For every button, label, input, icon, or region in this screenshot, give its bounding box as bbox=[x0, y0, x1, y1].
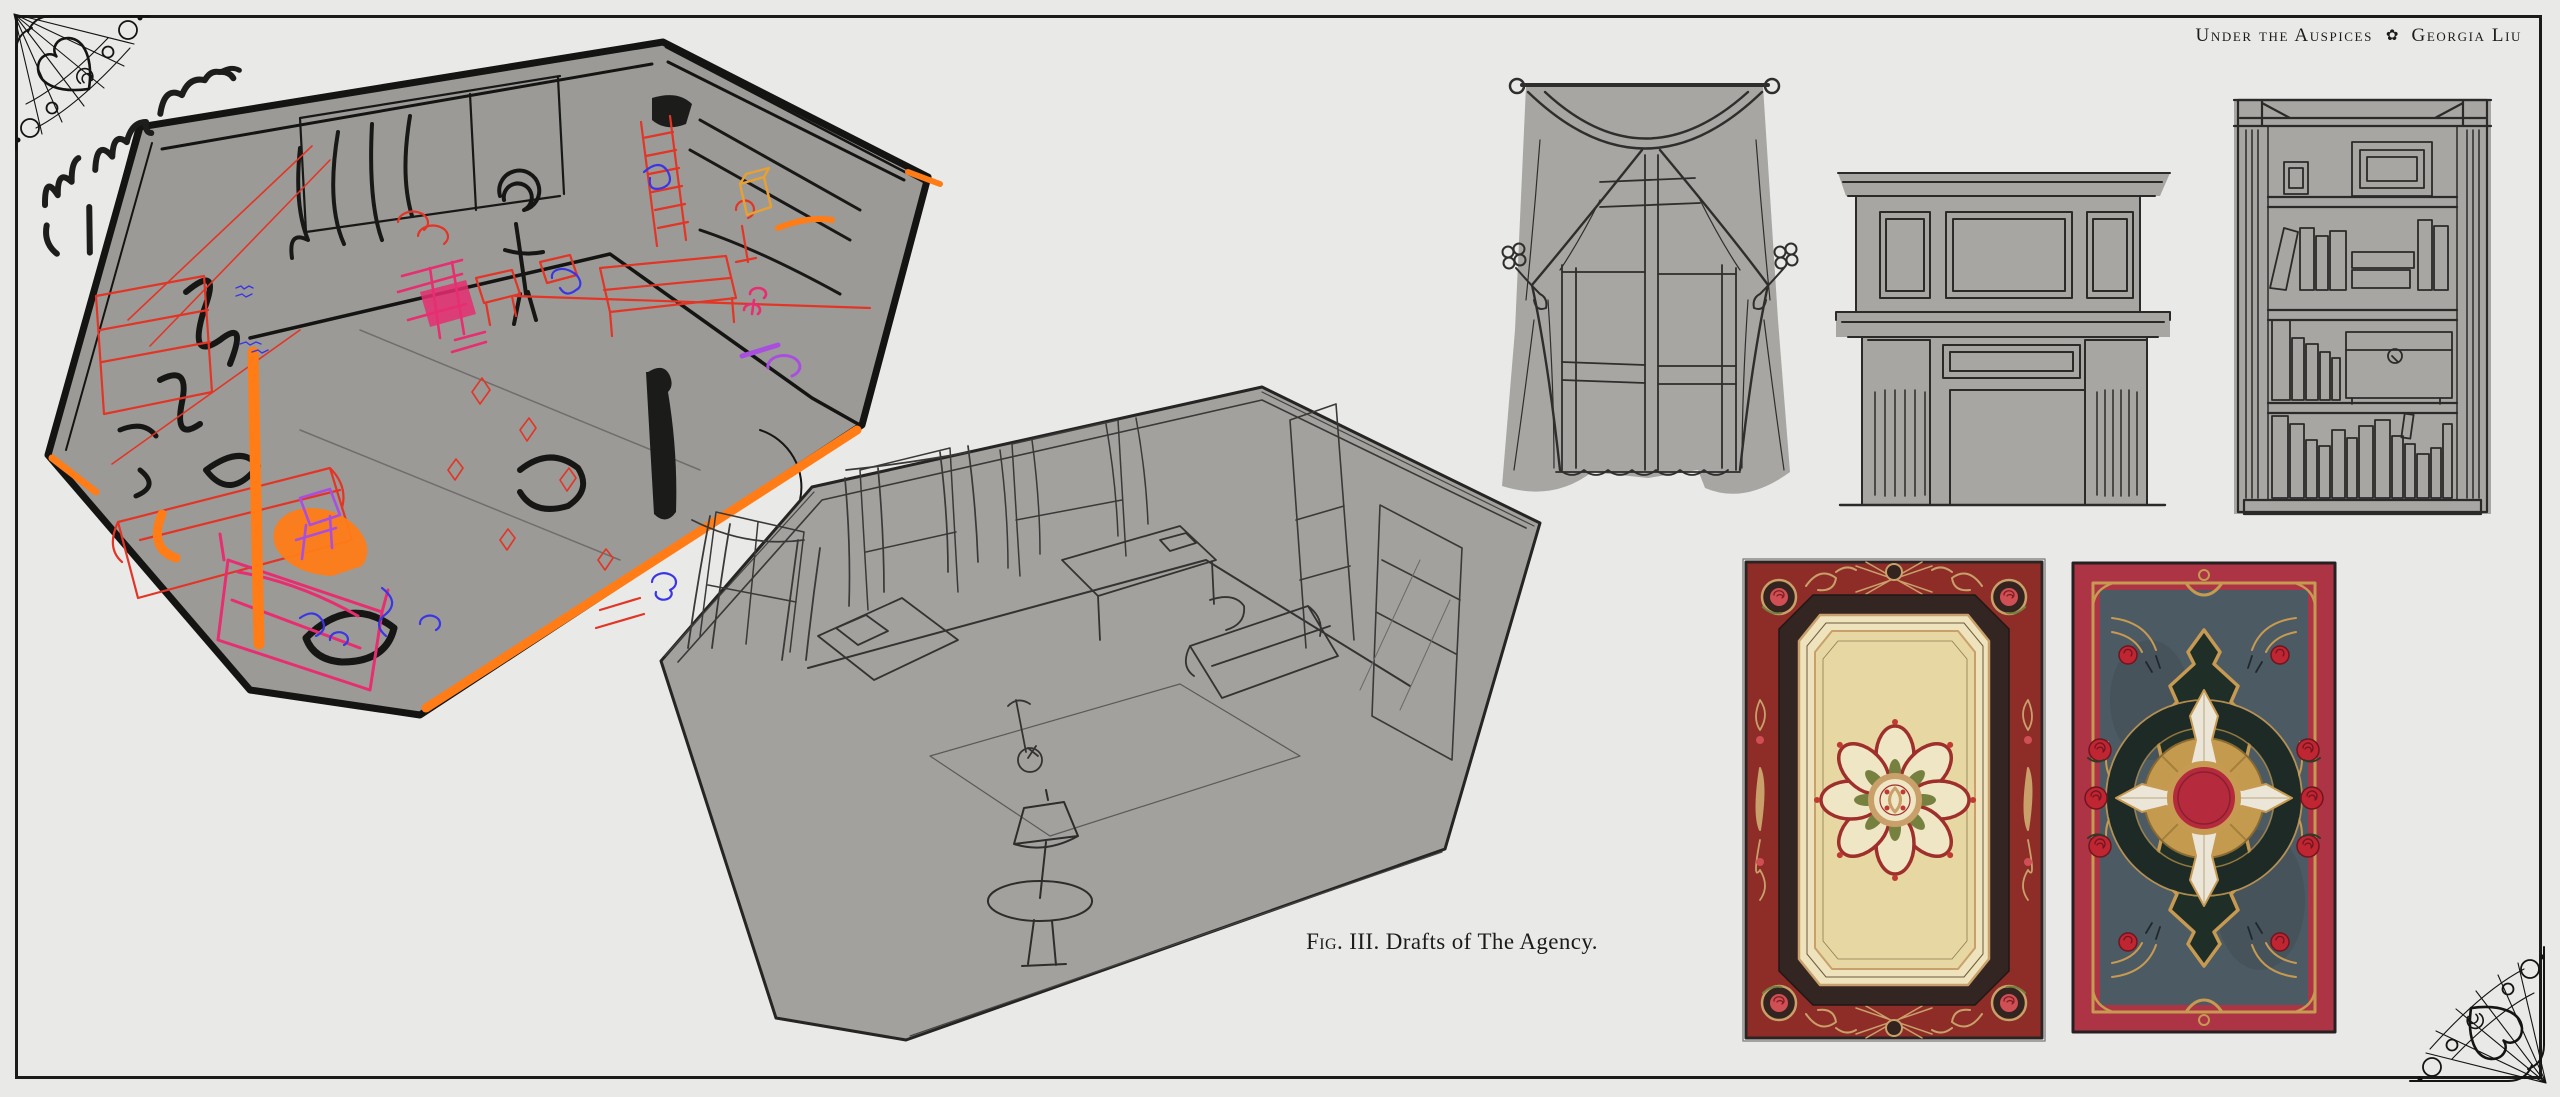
rug-center-disc bbox=[2170, 764, 2238, 832]
bookshelf-study bbox=[2234, 100, 2491, 514]
figure-caption: Fig. III. Drafts of The Agency. bbox=[1267, 929, 1637, 955]
rug-center-medallion bbox=[1814, 719, 1976, 881]
curtain-window-study bbox=[1502, 79, 1798, 494]
figure-label: Fig. bbox=[1306, 929, 1343, 954]
figure-title: III. Drafts of The Agency. bbox=[1349, 929, 1598, 954]
corner-ornament-bottom-right bbox=[2410, 947, 2546, 1083]
rug-study-slate-cross bbox=[2073, 563, 2335, 1032]
fireplace-mantel-study bbox=[1836, 173, 2170, 505]
rug-study-cream-floral bbox=[1743, 559, 2045, 1041]
